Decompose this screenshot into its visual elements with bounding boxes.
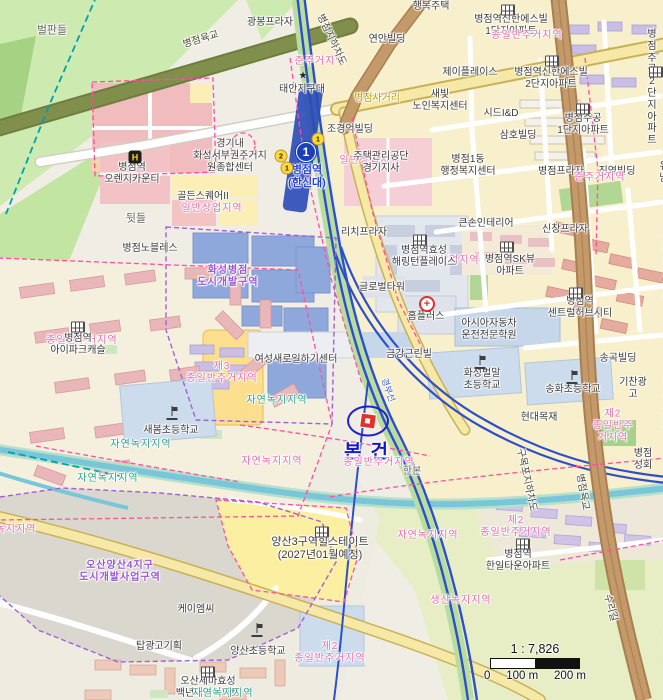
map-label: 병점육교 bbox=[573, 473, 591, 511]
map-label: 준주거지역 bbox=[575, 172, 626, 184]
map-label: 탑광고기획 bbox=[136, 641, 182, 653]
map-label: 병점역신한에스빌 2단지아파트 bbox=[514, 67, 588, 91]
map-label: 병점역 아이파크캐슬 bbox=[50, 333, 105, 357]
school-icon bbox=[567, 370, 578, 384]
station-name: 병점역(한신대) bbox=[288, 164, 326, 190]
map-label: 새빛 노인복지센터 bbox=[412, 89, 467, 113]
map-label: 글로벌타워 bbox=[359, 282, 405, 294]
map[interactable]: 본건 병점역(한신대) 1 : 7,826 0 100 m 200 m 벌판들광… bbox=[0, 0, 663, 700]
map-label: 조경억빌딩 bbox=[327, 124, 373, 136]
map-label: 홈플러스 bbox=[408, 311, 445, 323]
map-label: 시드I&D bbox=[483, 108, 518, 120]
apartment-icon bbox=[71, 322, 85, 333]
map-label: 생산녹지지역 bbox=[430, 595, 491, 607]
map-label: 병점1동 행정복지센터 bbox=[440, 154, 495, 178]
school-icon bbox=[252, 623, 263, 637]
map-label: 화성병점 도시개발구역 bbox=[197, 265, 258, 289]
map-label: 자연녹지지역 bbox=[397, 530, 458, 542]
map-label: 연안빌딩 bbox=[369, 34, 406, 46]
apartment-icon bbox=[569, 288, 583, 299]
map-label: 병점주공 2단지아파트 bbox=[647, 29, 658, 147]
map-label: 병점역효성 해링턴플레이스 bbox=[392, 245, 456, 269]
subject-building-icon bbox=[360, 414, 376, 429]
apartment-icon bbox=[501, 5, 515, 16]
map-label: 행복주택 bbox=[413, 1, 450, 13]
map-label: 자연녹지지역 bbox=[110, 439, 171, 451]
map-label: 녹지지역 bbox=[0, 524, 36, 536]
map-label: 수리길 bbox=[601, 593, 620, 623]
map-label: 송곡빌딩 bbox=[600, 353, 637, 365]
map-label: 양산3구역힐스테이트 (2027년01월예정) bbox=[271, 536, 368, 562]
map-label: 제2 종일반주거지역 bbox=[480, 515, 551, 539]
apartment-icon bbox=[649, 67, 663, 78]
map-label: 송화초등학교 bbox=[545, 384, 600, 396]
map-label: 태안지구대 bbox=[279, 84, 325, 96]
school-icon bbox=[475, 355, 486, 369]
line1-badge-icon: 1 bbox=[296, 142, 316, 162]
map-label: 병점역 한일타운아파트 bbox=[486, 549, 550, 573]
map-label: 기찬광고 bbox=[618, 377, 648, 401]
apartment-icon bbox=[201, 667, 215, 678]
map-label: 자연녹지지역 bbox=[246, 395, 307, 407]
map-label: 경부선 bbox=[379, 377, 397, 404]
map-label: 일반상업지역 bbox=[181, 203, 242, 215]
map-label: 종일반주거지역 bbox=[491, 30, 562, 42]
apartment-icon bbox=[500, 242, 514, 253]
apartment-icon bbox=[413, 235, 427, 246]
apartment-icon bbox=[576, 104, 590, 115]
map-label: 병점육교 bbox=[182, 29, 221, 51]
map-label: 뒷들 bbox=[126, 213, 146, 226]
school-icon bbox=[167, 406, 178, 420]
map-label: 병점역 센트럴허브시티 bbox=[548, 296, 612, 320]
scale-ticks: 0 100 m 200 m bbox=[484, 670, 586, 682]
map-label: 신창프라자 bbox=[542, 224, 588, 236]
homeplus-icon: + bbox=[419, 296, 435, 312]
scale-ratio: 1 : 7,826 bbox=[484, 642, 586, 656]
map-label: 병점성회 bbox=[633, 448, 653, 472]
map-label: 주택관리공단 경기지사 bbox=[353, 151, 408, 175]
apartment-icon bbox=[545, 56, 559, 67]
map-label: 제2 종일반주거지역 bbox=[588, 408, 638, 443]
map-label: 병점역 오렌지카운티 bbox=[104, 162, 159, 186]
map-label: 경기내 화성서부권주거지 원종합센터 bbox=[193, 138, 267, 173]
map-label: 유남 bbox=[659, 161, 663, 185]
map-label: 오산양산4지구 도시개발사업구역 bbox=[79, 560, 161, 584]
map-label: 큰손인테리어 bbox=[458, 218, 513, 230]
map-label: 병점노블레스 bbox=[122, 243, 177, 255]
map-label: 병점주공 1단지아파트 bbox=[557, 113, 609, 137]
map-label: 현대목재 bbox=[521, 412, 558, 424]
map-label: 화성벌말 초등학교 bbox=[464, 368, 501, 392]
map-label: 리치프라자 bbox=[341, 227, 387, 239]
map-label: 구목포지하차도 bbox=[514, 447, 539, 512]
exit-badge-icon: 1 bbox=[281, 162, 294, 175]
map-label: 삼호빌딩 bbox=[500, 130, 537, 142]
hotel-icon: H bbox=[129, 151, 142, 164]
map-label: 새봄초등학교 bbox=[143, 425, 198, 437]
map-label: 제3 종일반주거지역 bbox=[186, 361, 257, 385]
map-label: 자연녹지지역 bbox=[241, 456, 302, 468]
map-label: 양산초등학교 bbox=[230, 646, 285, 658]
map-label: 벌판들 bbox=[37, 25, 67, 38]
map-label: 자연녹지지역 bbox=[192, 688, 253, 700]
map-label: 병점역SK뷰 아파트 bbox=[485, 254, 535, 278]
police-icon: ★ bbox=[299, 71, 308, 82]
scale-track bbox=[490, 658, 580, 669]
map-label: 골든스퀘어II bbox=[177, 191, 229, 203]
map-label: 케이엠씨 bbox=[178, 604, 215, 616]
map-label: 광봉프라자 bbox=[247, 17, 293, 29]
labels-layer: 본건 병점역(한신대) 1 : 7,826 0 100 m 200 m 벌판들광… bbox=[0, 0, 663, 700]
map-label: 한본 bbox=[403, 466, 421, 478]
map-label: 제2 종일반주거지역 bbox=[294, 641, 365, 665]
apartment-icon bbox=[315, 527, 329, 538]
scale-bar: 1 : 7,826 0 100 m 200 m bbox=[484, 642, 586, 682]
apartment-icon bbox=[516, 539, 530, 550]
map-label: 금강근린빌 bbox=[386, 349, 432, 361]
map-label: 아시아자동차 운전전문학원 bbox=[461, 318, 516, 342]
exit-badge-icon: 1 bbox=[312, 133, 325, 146]
map-label: 제이플레이스 bbox=[442, 67, 497, 79]
map-label: 여성새로일하기센터 bbox=[255, 354, 338, 366]
map-label: 병점사거리 bbox=[354, 93, 400, 105]
map-label: 자연녹지지역 bbox=[77, 473, 138, 485]
